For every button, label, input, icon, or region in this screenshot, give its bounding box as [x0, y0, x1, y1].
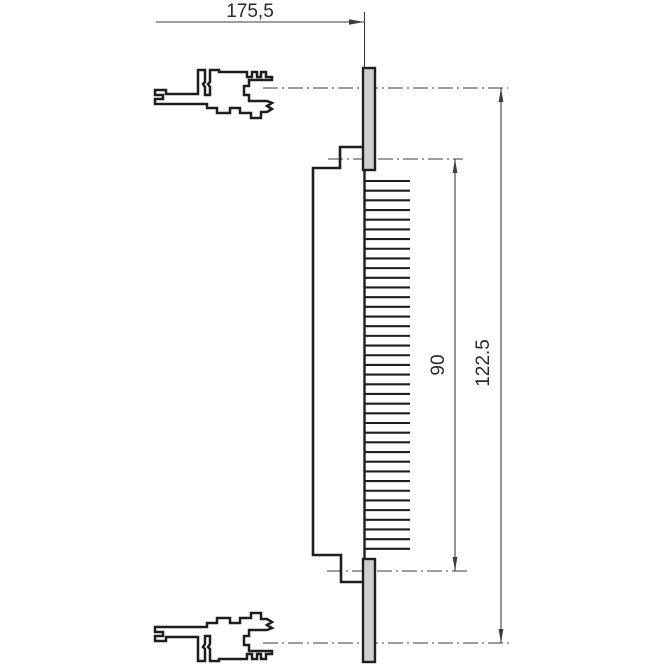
contact-pins [365, 181, 410, 549]
dim-pin-field-arrow-down-icon [453, 557, 458, 571]
dim-panel-height: 122.5 [473, 88, 503, 643]
dim-panel-height-arrow-up-icon [499, 88, 504, 102]
connector-body-outline [313, 147, 363, 582]
front-panel-top [363, 68, 375, 170]
front-panel-bottom [363, 559, 375, 662]
drawing-svg: 175,5 90 122.5 [0, 0, 665, 665]
dim-pin-field-label: 90 [428, 354, 449, 375]
dim-pin-field-arrow-up-icon [453, 159, 458, 173]
dim-width-arrow-right-icon [349, 19, 364, 25]
dim-width-label: 175,5 [226, 1, 274, 22]
bottom-rail-profile [155, 613, 272, 661]
dim-pin-field: 90 [428, 159, 457, 571]
dim-panel-height-label: 122.5 [473, 339, 494, 387]
top-rail-profile [155, 70, 272, 118]
technical-drawing-canvas: 175,5 90 122.5 [0, 0, 665, 665]
dim-width: 175,5 [156, 1, 365, 68]
dim-panel-height-arrow-down-icon [499, 629, 504, 643]
